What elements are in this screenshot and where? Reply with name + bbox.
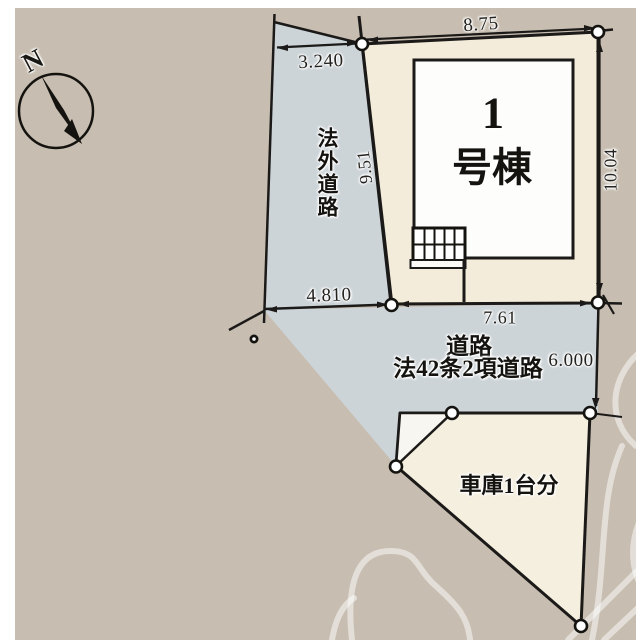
porch-step: [411, 260, 466, 268]
site-plan: N 3.240 8.75 9.51 10.04 4.810 7.61 6.000…: [0, 0, 640, 640]
hogai-road-label: 法外道路: [312, 127, 342, 219]
road-label-line2: 法42条2項道路: [393, 349, 543, 383]
porch-hatch: [413, 228, 465, 261]
dimension-bottom-left: 4.810: [306, 284, 352, 308]
garage-label: 車庫1台分: [459, 468, 558, 500]
dimension-lot-right: 10.04: [601, 149, 622, 192]
building-name: 号棟: [452, 135, 532, 193]
dimension-lot-top: 8.75: [463, 13, 500, 37]
survey-point-center: [252, 337, 256, 341]
dimension-lot-bottom: 7.61: [483, 308, 517, 329]
building-number: 1: [482, 88, 504, 139]
site-plan-svg: [0, 0, 640, 640]
dimension-strip-top: 3.240: [298, 50, 344, 74]
dimension-road-width: 6.000: [548, 350, 593, 372]
dimension-strip-length: 9.51: [353, 149, 377, 185]
